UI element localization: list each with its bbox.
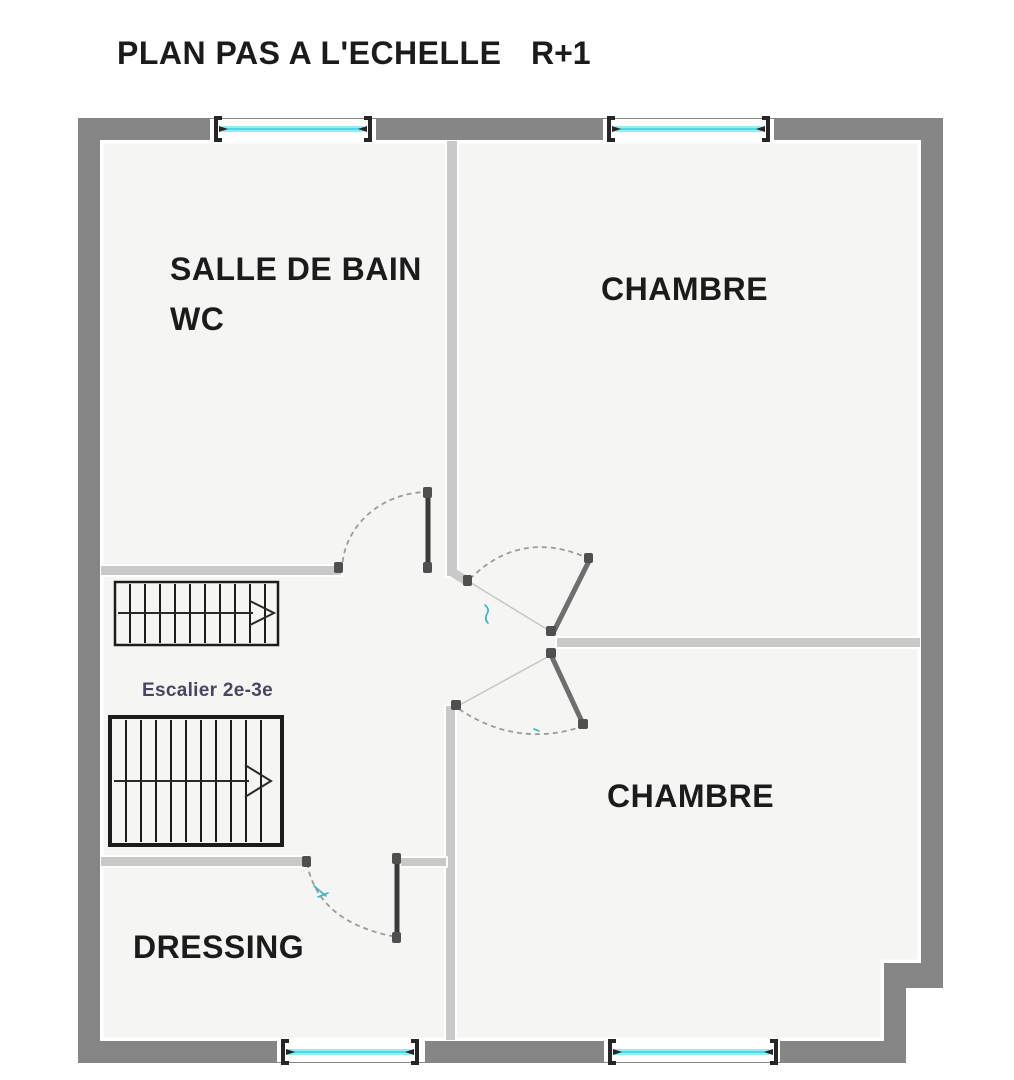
floorplan-screenshot: PLAN PAS A L'ECHELLE R+1 (0, 0, 1014, 1080)
wall-bathroom-bottom (100, 565, 342, 576)
room-label-bedroom-top: CHAMBRE (601, 271, 768, 308)
wall-bathroom-bedroom-divider (446, 140, 458, 577)
room-label-bedroom-bottom: CHAMBRE (607, 778, 774, 815)
window-top-left (210, 116, 376, 142)
room-label-dressing: DRESSING (133, 929, 304, 966)
window-top-right (603, 116, 774, 142)
floorplan-drawing (0, 0, 1014, 1080)
room-label-bathroom: SALLE DE BAIN (170, 251, 422, 288)
wall-dressing-divider-right (400, 857, 447, 867)
wall-bedrooms-divider (556, 637, 921, 648)
room-label-wc: WC (170, 301, 224, 338)
staircase-label: Escalier 2e-3e (142, 681, 273, 702)
window-bottom-left (277, 1039, 425, 1065)
wall-corridor-bedroom-lower (445, 705, 456, 1041)
wall-dressing-divider-left (100, 856, 307, 867)
window-bottom-right (604, 1039, 780, 1065)
